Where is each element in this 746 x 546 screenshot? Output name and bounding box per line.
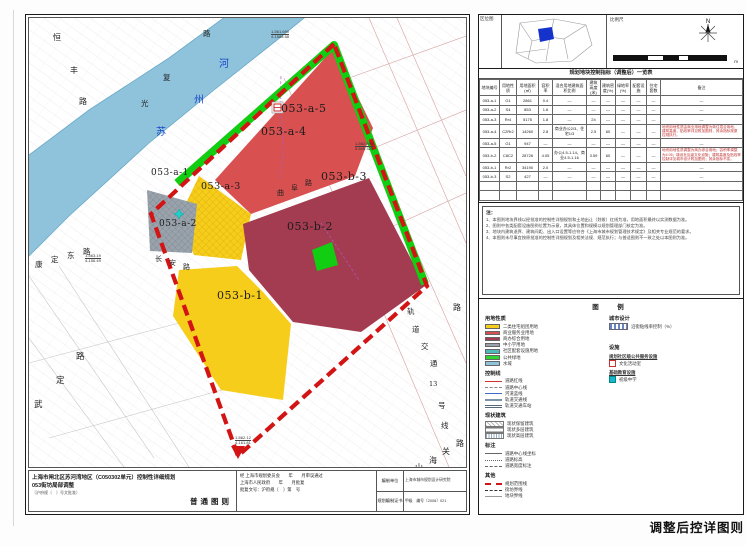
legend-marks-list: 道路中心线坐标 道路标高 道路宽度标注 (485, 451, 601, 470)
table-cell (631, 191, 647, 201)
table-cell: — (631, 105, 647, 115)
mark-label: 道路中心线坐标 (505, 451, 536, 457)
table-cell: 14260 (517, 124, 539, 138)
facility-item2-label: 初级中学 (619, 377, 637, 383)
table-cell (661, 191, 743, 201)
table-cell: — (631, 96, 647, 106)
table-cell: 地块用地性质调整为商办综合用地；容积率调整为4.05；增设社区级文化设施；建筑高… (661, 148, 743, 162)
table-cell: C2Rr2 (500, 124, 517, 138)
mark-sample (485, 460, 502, 461)
facility-group1-label: 规划社区级公共服务设施 (609, 354, 737, 360)
landuse-swatch (485, 331, 500, 336)
table-cell (661, 181, 743, 191)
line-label: 轨道交通车站 (505, 403, 531, 409)
table-row (480, 191, 743, 201)
table-cell: — (647, 148, 661, 162)
table-header-cell: 容积率 (539, 80, 553, 96)
table-cell: — (631, 115, 647, 125)
table-cell: 4.05 (539, 148, 553, 162)
table-cell: 60 (601, 124, 616, 138)
table-cell: — (616, 148, 631, 162)
table-title: 规划地块控制指标（调整后）一览表 (479, 69, 743, 79)
table-cell (587, 181, 601, 191)
approval-line2: 上海市人民政府 年 月批复 (240, 480, 373, 487)
plan-map-sheet: 053-a-1 053-a-2 053-a-3 053-a-4 053-a-5 … (25, 14, 470, 515)
table-cell: — (647, 162, 661, 172)
table-cell: G1 (500, 96, 517, 106)
map-canvas: 053-a-1 053-a-2 053-a-3 053-a-4 053-a-5 … (28, 17, 467, 468)
table-cell (601, 191, 616, 201)
table-header-cell: 用地性质 (500, 80, 517, 96)
table-cell: — (601, 105, 616, 115)
organization-value: 甲级 编号〔2008〕021 (404, 492, 466, 512)
sheet-title-block: 上海市闸北区苏河湾地区（C050302单元）控制性详细规划 053街坊局部调整 … (28, 470, 467, 512)
table-cell: — (587, 172, 601, 182)
table-cell (601, 181, 616, 191)
other-label: 地块界线 (505, 493, 523, 499)
table-row: 053-a-1G128610.4——————— (480, 96, 743, 106)
legend-status-item: 现状高层建筑 (485, 433, 601, 439)
table-row: 053-b-2C8C2287264.05办公4.5-1.14、商业4.5-1.1… (480, 148, 743, 162)
table-cell: S2 (500, 172, 517, 182)
table-cell: — (587, 162, 601, 172)
other-sample (485, 483, 502, 485)
table-cell: 商业办公2/3、住宅1/3 (553, 124, 587, 138)
table-cell: — (616, 105, 631, 115)
table-cell: 0.4 (539, 96, 553, 106)
table-cell: — (601, 172, 616, 182)
table-cell: — (647, 105, 661, 115)
scan-edge-line (13, 10, 14, 526)
location-minimap-svg (502, 15, 606, 67)
landuse-swatch (485, 355, 500, 360)
table-cell: 5175 (517, 115, 539, 125)
table-row (480, 181, 743, 191)
table-cell: — (539, 138, 553, 148)
table-cell: — (616, 124, 631, 138)
table-header-cell: 住宅套数 (647, 80, 661, 96)
table-cell: — (616, 172, 631, 182)
table-cell: — (601, 162, 616, 172)
scale-label: 比例尺 (610, 17, 624, 23)
table-cell (616, 181, 631, 191)
legend-left-column: 用地性质 二类住宅组团用地 商业服务业用地 商办综合用地 (485, 312, 601, 499)
table-cell: 053-a-1 (480, 96, 500, 106)
table-header-cell: 混合用地建筑面积比例 (553, 80, 587, 96)
table-cell: — (616, 138, 631, 148)
plate-title: 调整后控详图则 (649, 517, 744, 536)
table-header-cell: 配套设施 (631, 80, 647, 96)
table-cell: — (631, 172, 647, 182)
base-map-svg (29, 18, 466, 467)
table-cell (553, 181, 587, 191)
table-cell: — (631, 138, 647, 148)
landuse-label: 公共绿地 (503, 355, 521, 361)
legend-mark-item: 道路宽度标注 (485, 463, 601, 469)
table-cell: — (661, 96, 743, 106)
legend-line-item: 轨道交通车站 (485, 403, 601, 409)
table-header-cell: 备注 (661, 80, 743, 96)
legend-other-list: 规划范围线 街坊界线 地块界线 (485, 481, 601, 500)
table-cell: — (647, 172, 661, 182)
organization-value: 上海市城市规划设计研究院 (404, 471, 466, 491)
table-row: 053-a-2S48531.6——————— (480, 105, 743, 115)
table-cell: 办公4.5-1.14、商业4.5-1.16 (553, 148, 587, 162)
note-item: 4、本图则未尽事宜按原批准的控制性详细规划及相关法规、规范执行；与普适图则不一致… (486, 235, 736, 241)
location-row: 区位图 比例尺 N (479, 15, 743, 69)
legend-lines-list: 道路红线 道路中心线 河道蓝线 轨道交通线 (485, 378, 601, 409)
approval-cell: 经 上海市规划委员会 年 月审议通过 上海市人民政府 年 月批复 批复文号：沪府… (237, 471, 377, 511)
plan-title-line1: 上海市闸北区苏河湾地区（C050302单元）控制性详细规划 (32, 473, 233, 481)
line-label: 道路中心线 (505, 385, 527, 391)
legend-other-header: 其他 (485, 472, 601, 479)
scale-bar (613, 55, 727, 61)
mark-sample (485, 453, 502, 454)
cultural-facility-icon (272, 102, 283, 113)
table-cell: Rr4 (500, 115, 517, 125)
line-label: 河道蓝线 (505, 391, 523, 397)
table-cell: 053-a-3 (480, 115, 500, 125)
sheet-type-label: 普通图则 (190, 496, 232, 507)
legend-landuse-item: 水域 (485, 361, 601, 367)
table-row: 053-a-5G1947———————— (480, 138, 743, 148)
notes-box: 注： 1、本图则地块界线以经批准的控制性详细规划和土地出让（划拨）红线为准，用地… (482, 206, 740, 295)
table-cell: — (616, 96, 631, 106)
table-header-row: 地块编号用地性质用地面积(㎡)容积率混合用地建筑面积比例建筑高度(米)建筑密度(… (480, 80, 743, 96)
location-highlight-parcel (538, 27, 554, 42)
table-cell: — (553, 105, 587, 115)
table-cell (500, 181, 517, 191)
location-corner-label: 区位图 (479, 15, 502, 68)
landuse-swatch (485, 361, 500, 366)
table-cell (517, 191, 539, 201)
table-cell: — (587, 96, 601, 106)
table-cell: 60 (601, 148, 616, 162)
approval-line3: 批复文号：沪府规〔 〕第 号 (240, 487, 373, 494)
table-cell: — (661, 162, 743, 172)
table-header-cell: 用地面积(㎡) (517, 80, 539, 96)
line-sample (485, 387, 502, 388)
sheet-title-cell: 上海市闸北区苏河湾地区（C050302单元）控制性详细规划 053街坊局部调整 … (29, 471, 237, 511)
mark-label: 道路宽度标注 (505, 463, 531, 469)
table-cell: 053-b-1 (480, 162, 500, 172)
table-cell: — (616, 115, 631, 125)
landuse-swatch (485, 324, 500, 329)
legend-title: 图 例 (479, 299, 743, 311)
line-sample (485, 381, 502, 382)
notes-list: 1、本图则地块界线以经批准的控制性详细规划和土地出让（划拨）红线为准，用地面积最… (486, 217, 736, 241)
table-cell: — (601, 138, 616, 148)
table-cell: 1.6 (539, 105, 553, 115)
table-cell: 053-b-2 (480, 148, 500, 162)
organization-label: 规划编制证书 (377, 492, 404, 512)
table-cell (517, 181, 539, 191)
legend-status-header: 现状建筑 (485, 412, 601, 419)
table-cell: 28726 (517, 148, 539, 162)
table-cell: — (553, 138, 587, 148)
table-cell (553, 191, 587, 201)
approval-line1: 经 上海市规划委员会 年 月审议通过 (240, 473, 373, 480)
plan-title-line2: 053街坊局部调整 (32, 481, 233, 489)
table-cell: — (553, 115, 587, 125)
table-cell: — (539, 172, 553, 182)
table-cell (587, 191, 601, 201)
table-cell (539, 191, 553, 201)
table-row: 053-a-3Rr451751.8—24————— (480, 115, 743, 125)
table-cell: S4 (500, 105, 517, 115)
line-sample (485, 393, 502, 394)
north-arrow-icon: N (689, 16, 729, 44)
table-cell: — (553, 172, 587, 182)
table-cell: 2.8 (539, 124, 553, 138)
legend-lines-header: 控制线 (485, 370, 601, 377)
table-cell: 3.59 (587, 148, 601, 162)
notes-section: 注： 1、本图则地块界线以经批准的控制性详细规划和土地出让（划拨）红线为准，用地… (479, 203, 743, 299)
school-facility-legend-icon (609, 376, 616, 383)
table-cell: 2.5 (587, 124, 601, 138)
table-cell: — (587, 138, 601, 148)
legend-design-header: 城市设计 (609, 315, 737, 322)
table-cell: 053-a-2 (480, 105, 500, 115)
status-label: 现状保留建筑 (507, 421, 533, 427)
other-sample (485, 490, 502, 491)
table-cell: 053-b-3 (480, 172, 500, 182)
landuse-swatch (485, 337, 500, 342)
table-cell: 053-a-5 (480, 138, 500, 148)
table-cell: 053-a-4 (480, 124, 500, 138)
landuse-label: 二类住宅组团用地 (503, 324, 538, 330)
table-cell: 2861 (517, 96, 539, 106)
legend-right-column: 城市设计 沿街贴线率控制（%） 设施 规划社区级公共服务设施 文化活动室 基础教… (609, 312, 737, 383)
table-cell (500, 191, 517, 201)
table-cell: — (661, 172, 743, 182)
facility-item2: 初级中学 (609, 377, 737, 383)
table-cell: — (601, 115, 616, 125)
table-cell: — (631, 148, 647, 162)
table-cell (480, 181, 500, 191)
table-cell (616, 191, 631, 201)
organization-cell: 编制单位 上海市城市规划设计研究院 规划编制证书 甲级 编号〔2008〕021 (377, 471, 466, 511)
table-cell (631, 181, 647, 191)
landuse-swatch (485, 349, 500, 354)
notes-title: 注： (486, 209, 736, 216)
design-label: 沿街贴线率控制（%） (631, 324, 674, 330)
table-cell: — (616, 162, 631, 172)
table-cell: 34190 (517, 162, 539, 172)
cultural-facility-legend-icon (609, 360, 616, 367)
table-cell: — (661, 105, 743, 115)
table-cell: — (647, 96, 661, 106)
table-cell: — (553, 162, 587, 172)
table-header-cell: 地块编号 (480, 80, 500, 96)
landuse-label: 社区配套设施用地 (503, 348, 538, 354)
organization-label: 编制单位 (377, 471, 404, 491)
table-cell: — (647, 138, 661, 148)
table-cell (647, 191, 661, 201)
landuse-label: 商业服务业用地 (503, 330, 534, 336)
north-scale-cell: 比例尺 N m (607, 15, 743, 68)
status-label: 现状高层建筑 (507, 433, 533, 439)
table-cell: 853 (517, 105, 539, 115)
table-cell (480, 191, 500, 201)
table-body: 053-a-1G128610.4——————— 053-a-2S48531.6—… (480, 96, 743, 201)
legend-facility-header: 设施 (609, 344, 737, 351)
table-row: 053-b-1Rr2341902.0——————— (480, 162, 743, 172)
table-cell: 1.8 (539, 115, 553, 125)
table-cell: G1 (500, 138, 517, 148)
facility-item1: 文化活动室 (609, 361, 737, 367)
table-cell (647, 181, 661, 191)
table-cell: — (631, 124, 647, 138)
info-panel: 区位图 比例尺 N (478, 14, 744, 515)
table-cell (539, 181, 553, 191)
line-sample (485, 405, 502, 408)
design-swatch (609, 323, 628, 330)
table-cell: 2.0 (539, 162, 553, 172)
legend-other-item: 地块界线 (485, 493, 601, 499)
facility-item1-label: 文化活动室 (619, 361, 641, 367)
table-cell: — (601, 96, 616, 106)
table-row: 053-a-4C2Rr2142602.8商业办公2/3、住宅1/32.560——… (480, 124, 743, 138)
table-cell: — (647, 115, 661, 125)
table-cell: — (631, 162, 647, 172)
facility-group2-label: 基础教育设施 (609, 370, 737, 376)
location-minimap (502, 15, 607, 68)
table-cell: — (661, 138, 743, 148)
status-sample (485, 433, 504, 440)
mark-sample (485, 466, 502, 467)
legend-status-list: 现状保留建筑 现状多层建筑 现状高层建筑 (485, 421, 601, 440)
table-row: 053-b-3S2427———————— (480, 172, 743, 182)
table-cell: 24 (587, 115, 601, 125)
organization-row: 编制单位 上海市城市规划设计研究院 (377, 471, 466, 492)
scale-unit-label: m (734, 59, 738, 64)
line-sample (485, 399, 502, 401)
table-cell: — (647, 124, 661, 138)
table-cell: 947 (517, 138, 539, 148)
landuse-swatch (485, 343, 500, 348)
table-cell: C8C2 (500, 148, 517, 162)
line-label: 道路红线 (505, 378, 523, 384)
table-cell: — (553, 96, 587, 106)
table-header-cell: 绿地率(%) (616, 80, 631, 96)
table-cell: 427 (517, 172, 539, 182)
table-header-cell: 建筑密度(%) (601, 80, 616, 96)
table-cell: Rr2 (500, 162, 517, 172)
legend-landuse-list: 二类住宅组团用地 商业服务业用地 商办综合用地 中小学用地 (485, 324, 601, 367)
organization-row: 规划编制证书 甲级 编号〔2008〕021 (377, 492, 466, 512)
legend-section: 图 例 用地性质 二类住宅组团用地 商业服务业用地 (479, 299, 743, 511)
legend-landuse-header: 用地性质 (485, 315, 601, 322)
table-cell: 地块用地性质由商业用地调整为商住混合用地，建筑高度、贴线率详见附加图则，其余指标… (661, 124, 743, 138)
control-indicators-table: 地块编号用地性质用地面积(㎡)容积率混合用地建筑面积比例建筑高度(米)建筑密度(… (479, 79, 743, 201)
other-sample (485, 496, 502, 497)
table-header-cell: 建筑高度(米) (587, 80, 601, 96)
legend-design-item: 沿街贴线率控制（%） (609, 324, 737, 330)
landuse-label: 水域 (503, 361, 512, 367)
legend-marks-header: 标注 (485, 442, 601, 449)
control-table-section: 规划地块控制指标（调整后）一览表 地块编号用地性质用地面积(㎡)容积率混合用地建… (479, 69, 743, 203)
table-cell: — (661, 115, 743, 125)
table-cell: — (587, 105, 601, 115)
